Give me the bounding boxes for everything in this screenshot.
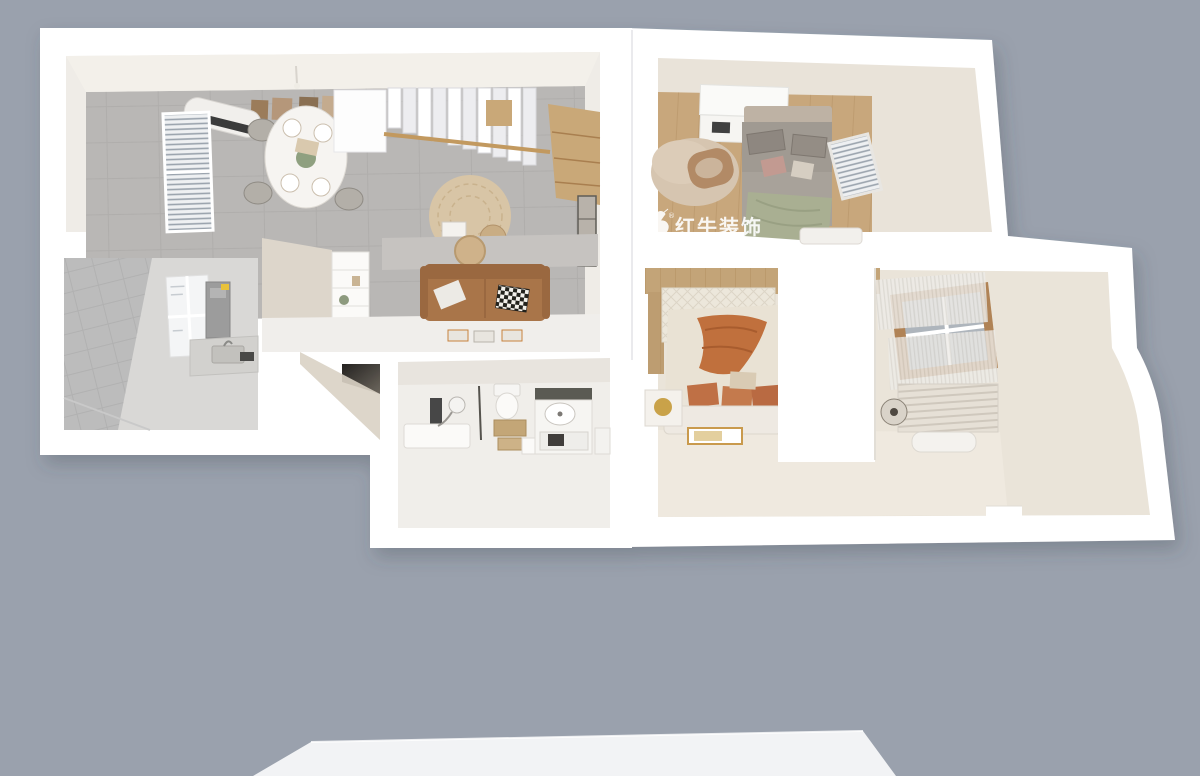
platform-magazines xyxy=(448,330,522,342)
nightstand-decor xyxy=(654,398,672,416)
kitchen xyxy=(64,258,258,430)
bed-pillow xyxy=(747,130,785,155)
watermark-brand-text: 红牛装饰 xyxy=(675,215,763,239)
partition-wall xyxy=(778,265,875,462)
bed-end-bench xyxy=(800,228,862,244)
bathroom-shelf xyxy=(494,420,526,450)
stair-winder-steps xyxy=(548,104,600,205)
toilet xyxy=(494,384,520,419)
floorplan-render-stage: ® 红牛装饰 HONG NIU DECORATION xyxy=(0,0,1200,776)
beige-pillow xyxy=(730,371,757,389)
round-wall-decor xyxy=(455,236,485,266)
desk-laptop xyxy=(712,122,730,134)
dormer-window-nook xyxy=(875,272,998,452)
window-bench xyxy=(912,432,976,452)
watermark-registered-mark: ® xyxy=(668,212,675,220)
dining-window xyxy=(163,112,213,232)
nightstand xyxy=(645,390,682,426)
kitchen-appliance-column xyxy=(206,282,230,338)
display-shelf xyxy=(332,252,369,322)
floorplan-canvas: ® 红牛装饰 HONG NIU DECORATION xyxy=(0,0,1200,776)
kitchen-sink xyxy=(212,346,244,363)
bed-pillow xyxy=(791,134,827,157)
radiator xyxy=(898,384,998,432)
vanity-side-counter xyxy=(595,428,610,454)
sofa-pillow-checkered xyxy=(495,285,529,312)
bed-headboard xyxy=(744,106,832,124)
orange-pillow xyxy=(687,382,719,407)
watermark-tagline-text: HONG NIU DECORATION xyxy=(677,241,778,247)
appliance-label xyxy=(221,284,229,290)
sheer-curtain-top xyxy=(875,272,988,330)
shelf-plant xyxy=(339,295,349,305)
sheer-curtain-bottom xyxy=(888,330,998,390)
sofa xyxy=(420,264,550,321)
floor-art-frame xyxy=(688,428,742,444)
vanity xyxy=(535,388,592,454)
wall-notch xyxy=(986,506,1022,532)
dining-chair xyxy=(335,188,363,210)
coffee-table-books xyxy=(442,222,466,237)
stair-storage-box xyxy=(486,100,512,126)
bathroom xyxy=(398,358,610,528)
dining-chair xyxy=(244,182,272,204)
master-bedroom xyxy=(645,265,1150,532)
kitchen-counter xyxy=(190,336,258,376)
